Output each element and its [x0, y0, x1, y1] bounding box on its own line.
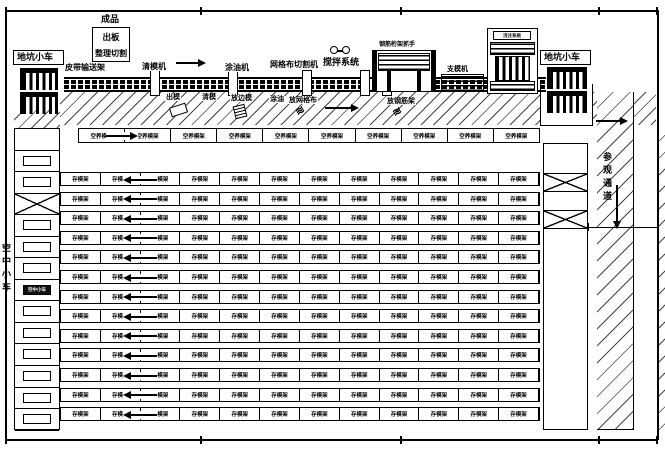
storage-rack-cell: 存模架	[61, 310, 101, 322]
factory-layout-drawing: 参观通道 地坑小车 地坑小车 成品 出板 整理切割 皮带输送架 清模机 涂油机 …	[0, 0, 665, 450]
aerial-trolley-lane: 空中小车	[14, 128, 60, 430]
storage-rack-cell: 存模架	[459, 173, 499, 185]
storage-rack-cell: 存模架	[380, 369, 420, 381]
frame-tick	[656, 7, 658, 15]
storage-rack-cell: 存模架	[419, 251, 459, 263]
storage-rack-cell: 存模架	[260, 330, 300, 342]
row-flow-arrow-icon	[123, 372, 157, 380]
storage-rack-cell: 存模架	[459, 212, 499, 224]
storage-rack-cell: 存模架	[340, 193, 380, 205]
row-flow-arrow-icon	[123, 176, 157, 184]
mold-setter-label: 支模机	[446, 66, 469, 73]
storage-rack-cell: 存模架	[380, 408, 420, 420]
storage-rack-cell: 存模架	[220, 349, 260, 361]
frame-tick	[200, 7, 202, 15]
storage-rack-cell: 存模架	[61, 330, 101, 342]
storage-rack-cell: 存模架	[419, 173, 459, 185]
mold-cleaner-label: 清模机	[141, 63, 167, 71]
storage-rack-cell: 存模架	[380, 330, 420, 342]
storage-rack-cell: 存模架	[340, 389, 380, 401]
storage-rack-cell: 存模架	[340, 330, 380, 342]
frame-bottom	[5, 439, 658, 441]
storage-rack-cell: 存模架	[300, 193, 340, 205]
storage-rack-cell: 存模架	[380, 251, 420, 263]
oil-label: 涂油	[269, 96, 285, 103]
storage-rack-cell: 存模架	[499, 330, 539, 342]
storage-rack-cell: 存模架	[419, 310, 459, 322]
storage-rack-cell: 存模架	[220, 271, 260, 283]
storage-rack-cell: 存模架	[300, 251, 340, 263]
empty-row-arrow-icon	[106, 132, 138, 140]
storage-rack-cell: 存模架	[180, 212, 220, 224]
storage-rack-cell: 存模架	[180, 349, 220, 361]
empty-rack-cell: 空养模架	[494, 129, 539, 142]
storage-rack-cell: 存模架	[220, 330, 260, 342]
mixer-icon	[330, 46, 350, 54]
storage-rack-cell: 存模架	[300, 330, 340, 342]
curing-rack-row: 存模架存模架存模架存模架存模架存模架存模架存模架存模架存模架存模架存模架	[60, 309, 540, 323]
rack-tier	[20, 68, 58, 90]
aerial-car-slot	[23, 263, 51, 273]
storage-rack-cell: 存模架	[220, 291, 260, 303]
clean-label: 清模	[201, 94, 217, 101]
rack-tier	[20, 92, 58, 114]
storage-rack-cell: 存模架	[61, 389, 101, 401]
aerial-lane-segment	[15, 258, 59, 280]
storage-rack-cell: 存模架	[61, 193, 101, 205]
mixer-post-a	[360, 70, 370, 96]
storage-rack-cell: 存模架	[380, 389, 420, 401]
storage-rack-cell: 存模架	[220, 369, 260, 381]
storage-rack-cell: 存模架	[419, 349, 459, 361]
storage-rack-cell: 存模架	[220, 232, 260, 244]
storage-rack-cell: 存模架	[300, 310, 340, 322]
storage-rack-cell: 存模架	[260, 271, 300, 283]
storage-rack-cell: 存模架	[180, 408, 220, 420]
aerial-car-slot	[23, 328, 51, 338]
row-flow-arrow-icon	[123, 411, 157, 419]
storage-rack-cell: 存模架	[419, 408, 459, 420]
aerial-lane-segment	[15, 172, 59, 194]
storage-rack-cell: 存模架	[419, 369, 459, 381]
empty-rack-cell: 空养模架	[402, 129, 448, 142]
storage-rack-cell: 存模架	[61, 212, 101, 224]
storage-rack-cell: 存模架	[459, 330, 499, 342]
storage-rack-cell: 存模架	[220, 408, 260, 420]
storage-rack-cell: 存模架	[459, 369, 499, 381]
storage-rack-cell: 存模架	[499, 291, 539, 303]
storage-rack-cell: 存模架	[340, 251, 380, 263]
storage-rack-cell: 存模架	[419, 291, 459, 303]
storage-rack-cell: 存模架	[300, 232, 340, 244]
storage-rack-cell: 存模架	[300, 408, 340, 420]
storage-rack-cell: 存模架	[340, 271, 380, 283]
storage-rack-cell: 存模架	[180, 271, 220, 283]
exit-flow-arrow-icon	[596, 117, 628, 125]
storage-rack-cell: 存模架	[300, 271, 340, 283]
belt-conveyor-label: 皮带输送架	[64, 64, 106, 72]
trim-cut-label: 整理切割	[93, 48, 129, 59]
demold-label: 出模	[165, 94, 181, 101]
storage-rack-cell: 存模架	[260, 232, 300, 244]
storage-rack-cell: 存模架	[419, 193, 459, 205]
aerial-lane-segment	[15, 388, 59, 410]
empty-rack-cell: 空养模架	[263, 129, 309, 142]
storage-rack-cell: 存模架	[61, 349, 101, 361]
storage-rack-cell: 存模架	[260, 349, 300, 361]
aerial-car-slot	[23, 220, 51, 230]
storage-rack-cell: 存模架	[459, 251, 499, 263]
oiler-label: 涂油机	[224, 64, 250, 72]
storage-rack-cell: 存模架	[61, 271, 101, 283]
empty-rack-cell: 空养模架	[448, 129, 494, 142]
storage-rack-cell: 存模架	[340, 232, 380, 244]
aerial-lane-segment	[15, 215, 59, 237]
elevator-cross-box	[544, 210, 587, 229]
storage-rack-cell: 存模架	[180, 173, 220, 185]
storage-rack-cell: 存模架	[459, 408, 499, 420]
storage-rack-cell: 存模架	[380, 310, 420, 322]
storage-rack-cell: 存模架	[419, 212, 459, 224]
aerial-car-slot	[23, 156, 51, 166]
pit-car-left-rack	[20, 68, 58, 116]
storage-rack-cell: 存模架	[300, 212, 340, 224]
mold-setter-machine	[441, 74, 484, 92]
curing-rack-row: 存模架存模架存模架存模架存模架存模架存模架存模架存模架存模架存模架存模架	[60, 231, 540, 245]
frame-tick	[5, 436, 7, 444]
storage-rack-cell: 存模架	[380, 349, 420, 361]
storage-rack-cell: 存模架	[220, 310, 260, 322]
frame-tick	[598, 7, 600, 15]
curing-rack-row: 存模架存模架存模架存模架存模架存模架存模架存模架存模架存模架存模架存模架	[60, 368, 540, 382]
storage-rack-cell: 存模架	[260, 212, 300, 224]
curing-rack-row: 存模架存模架存模架存模架存模架存模架存模架存模架存模架存模架存模架存模架	[60, 270, 540, 284]
right-wall-hatch	[659, 125, 665, 440]
row-flow-arrow-icon	[123, 352, 157, 360]
storage-rack-cell: 存模架	[340, 369, 380, 381]
storage-rack-cell: 存模架	[459, 389, 499, 401]
rebar-label: 放钢筋架	[386, 98, 416, 105]
storage-rack-cell: 存模架	[260, 310, 300, 322]
casting-machine: 浇注系统	[487, 28, 538, 94]
visitor-corridor	[597, 92, 634, 430]
storage-rack-cell: 存模架	[220, 251, 260, 263]
rack-tier	[547, 67, 587, 89]
curing-rack-row: 存模架存模架存模架存模架存模架存模架存模架存模架存模架存模架存模架存模架	[60, 172, 540, 186]
row-flow-arrow-icon	[123, 293, 157, 301]
storage-rack-cell: 存模架	[180, 232, 220, 244]
storage-rack-cell: 存模架	[260, 389, 300, 401]
storage-rack-cell: 存模架	[260, 173, 300, 185]
row-flow-arrow-icon	[123, 254, 157, 262]
storage-rack-cell: 存模架	[260, 251, 300, 263]
curing-rack-row: 存模架存模架存模架存模架存模架存模架存模架存模架存模架存模架存模架存模架	[60, 250, 540, 264]
row-flow-arrow-icon	[123, 274, 157, 282]
storage-rack-cell: 存模架	[459, 291, 499, 303]
aerial-lane-segment	[15, 344, 59, 366]
storage-rack-cell: 存模架	[340, 212, 380, 224]
visitor-corridor-label: 参观通道	[602, 152, 611, 204]
storage-rack-cell: 存模架	[260, 408, 300, 420]
mesh-cutter-post	[302, 70, 312, 96]
aerial-car-slot	[23, 371, 51, 381]
storage-rack-cell: 存模架	[380, 271, 420, 283]
storage-rack-cell: 存模架	[300, 173, 340, 185]
pit-car-right-rack	[547, 67, 587, 115]
storage-rack-cell: 存模架	[220, 193, 260, 205]
storage-rack-cell: 存模架	[380, 291, 420, 303]
process-band-hatch-right	[634, 92, 656, 125]
aerial-lane-segment	[15, 301, 59, 323]
storage-rack-cell: 存模架	[499, 369, 539, 381]
aerial-lane-segment	[15, 323, 59, 345]
storage-rack-cell: 存模架	[380, 173, 420, 185]
storage-rack-cell: 存模架	[419, 271, 459, 283]
storage-rack-cell: 存模架	[340, 291, 380, 303]
empty-rack-cell: 空养模架	[217, 129, 263, 142]
corridor-flow-arrow-down-icon	[613, 185, 621, 229]
aerial-lane-segment	[15, 237, 59, 259]
storage-rack-cell: 存模架	[260, 369, 300, 381]
storage-rack-cell: 存模架	[220, 212, 260, 224]
aerial-lane-segment	[15, 151, 59, 173]
aerial-lane-label: 空中小车	[1, 243, 10, 295]
casting-machine-label-box: 浇注系统	[493, 31, 531, 40]
mesh-cutter-label: 网格布切割机	[269, 61, 319, 69]
storage-rack-cell: 存模架	[61, 369, 101, 381]
section-line	[588, 227, 658, 228]
storage-rack-cell: 存模架	[380, 232, 420, 244]
storage-rack-cell: 存模架	[180, 251, 220, 263]
storage-rack-cell: 存模架	[499, 408, 539, 420]
mold-cleaner-post	[150, 70, 160, 96]
curing-rack-row: 存模架存模架存模架存模架存模架存模架存模架存模架存模架存模架存模架存模架	[60, 211, 540, 225]
storage-rack-cell: 存模架	[419, 389, 459, 401]
storage-rack-cell: 存模架	[180, 389, 220, 401]
storage-rack-cell: 存模架	[180, 193, 220, 205]
finished-label: 成品	[100, 15, 120, 24]
storage-rack-cell: 存模架	[459, 349, 499, 361]
storage-rack-cell: 存模架	[380, 212, 420, 224]
aerial-car-slot	[23, 242, 51, 252]
curing-rack-row: 存模架存模架存模架存模架存模架存模架存模架存模架存模架存模架存模架存模架	[60, 407, 540, 421]
storage-rack-cell: 存模架	[499, 271, 539, 283]
storage-rack-cell: 存模架	[419, 330, 459, 342]
storage-rack-cell: 存模架	[459, 193, 499, 205]
storage-rack-cell: 存模架	[499, 212, 539, 224]
storage-rack-cell: 存模架	[499, 349, 539, 361]
storage-rack-cell: 存模架	[340, 408, 380, 420]
storage-rack-cell: 存模架	[499, 232, 539, 244]
frame-tick	[598, 436, 600, 444]
mesh-label: 放网格布	[288, 97, 318, 104]
aerial-lane-segment	[15, 409, 59, 431]
storage-rack-cell: 存模架	[340, 349, 380, 361]
aerial-car: 空中小车	[23, 285, 51, 295]
aerial-car-slot	[23, 349, 51, 359]
storage-rack-cell: 存模架	[300, 369, 340, 381]
storage-rack-cell: 存模架	[61, 291, 101, 303]
storage-rack-cell: 存模架	[340, 310, 380, 322]
gripper-machine	[372, 50, 436, 92]
row-flow-arrow-icon	[123, 234, 157, 242]
storage-rack-cell: 存模架	[499, 193, 539, 205]
storage-rack-cell: 存模架	[180, 291, 220, 303]
row-flow-arrow-icon	[123, 313, 157, 321]
transfer-elevator-column	[543, 143, 588, 430]
frame-tick	[400, 436, 402, 444]
storage-rack-cell: 存模架	[180, 310, 220, 322]
pit-car-right-label: 地坑小车	[543, 53, 581, 62]
storage-rack-cell: 存模架	[220, 389, 260, 401]
aerial-car-slot	[23, 306, 51, 316]
aerial-car-slot	[23, 393, 51, 403]
curing-rack-row: 存模架存模架存模架存模架存模架存模架存模架存模架存模架存模架存模架存模架	[60, 192, 540, 206]
line-flow-arrow-icon	[176, 59, 206, 67]
empty-mold-rack-row: 空养模架空养模架空养模架空养模架空养模架空养模架空养模架空养模架空养模架空养模架	[78, 128, 540, 143]
frame-tick	[5, 7, 7, 15]
storage-rack-cell: 存模架	[499, 389, 539, 401]
curing-rack-row: 存模架存模架存模架存模架存模架存模架存模架存模架存模架存模架存模架存模架	[60, 388, 540, 402]
storage-rack-cell: 存模架	[459, 232, 499, 244]
curing-rack-row: 存模架存模架存模架存模架存模架存模架存模架存模架存模架存模架存模架存模架	[60, 290, 540, 304]
casting-machine-label: 浇注系统	[503, 33, 521, 39]
frame-top	[5, 10, 658, 12]
rack-tier	[547, 91, 587, 113]
curing-rack-row: 存模架存模架存模架存模架存模架存模架存模架存模架存模架存模架存模架存模架	[60, 329, 540, 343]
storage-rack-cell: 存模架	[499, 251, 539, 263]
trim-cut-box: 出板 整理切割	[92, 27, 130, 62]
side-mold-label: 放边模	[230, 95, 253, 102]
empty-rack-cell: 空养模架	[309, 129, 355, 142]
storage-rack-cell: 存模架	[459, 310, 499, 322]
storage-rack-cell: 存模架	[499, 173, 539, 185]
storage-rack-cell: 存模架	[260, 291, 300, 303]
frame-tick	[400, 7, 402, 15]
empty-rack-cell: 空养模架	[171, 129, 217, 142]
storage-rack-cell: 存模架	[300, 291, 340, 303]
storage-rack-cell: 存模架	[180, 369, 220, 381]
storage-rack-cell: 存模架	[419, 232, 459, 244]
frame-left	[5, 10, 7, 440]
aerial-lane-segment	[15, 366, 59, 388]
out-board-label: 出板	[93, 31, 129, 43]
band-flow-arrow-icon	[325, 104, 359, 112]
storage-rack-cell: 存模架	[300, 389, 340, 401]
storage-rack-cell: 存模架	[380, 193, 420, 205]
elevator-cross-box	[544, 173, 587, 192]
frame-tick	[656, 436, 658, 444]
row-flow-arrow-icon	[123, 332, 157, 340]
storage-rack-cell: 存模架	[61, 232, 101, 244]
pit-car-left-label: 地坑小车	[16, 53, 54, 62]
empty-rack-cell: 空养模架	[356, 129, 402, 142]
curing-rack-row: 存模架存模架存模架存模架存模架存模架存模架存模架存模架存模架存模架存模架	[60, 348, 540, 362]
storage-rack-cell: 存模架	[499, 310, 539, 322]
storage-rack-cell: 存模架	[300, 349, 340, 361]
gripper-label: 钢筋桁架抓手	[378, 42, 416, 48]
storage-rack-cell: 存模架	[61, 251, 101, 263]
storage-rack-cell: 存模架	[340, 173, 380, 185]
row-flow-arrow-icon	[123, 195, 157, 203]
oiler-post	[228, 70, 238, 96]
storage-rack-cell: 存模架	[220, 173, 260, 185]
aerial-car-slot	[23, 414, 51, 424]
row-flow-arrow-icon	[123, 215, 157, 223]
aerial-lane-segment	[15, 129, 59, 151]
storage-rack-cell: 存模架	[260, 193, 300, 205]
storage-rack-cell: 存模架	[61, 173, 101, 185]
storage-rack-cell: 存模架	[61, 408, 101, 420]
aerial-lane-segment	[15, 194, 59, 216]
storage-rack-cell: 存模架	[180, 330, 220, 342]
row-flow-arrow-icon	[123, 391, 157, 399]
aerial-lane-segment: 空中小车	[15, 280, 59, 302]
storage-rack-cell: 存模架	[459, 271, 499, 283]
aerial-car-slot	[23, 177, 51, 187]
frame-tick	[200, 436, 202, 444]
mixer-label: 搅拌系统	[322, 58, 360, 67]
